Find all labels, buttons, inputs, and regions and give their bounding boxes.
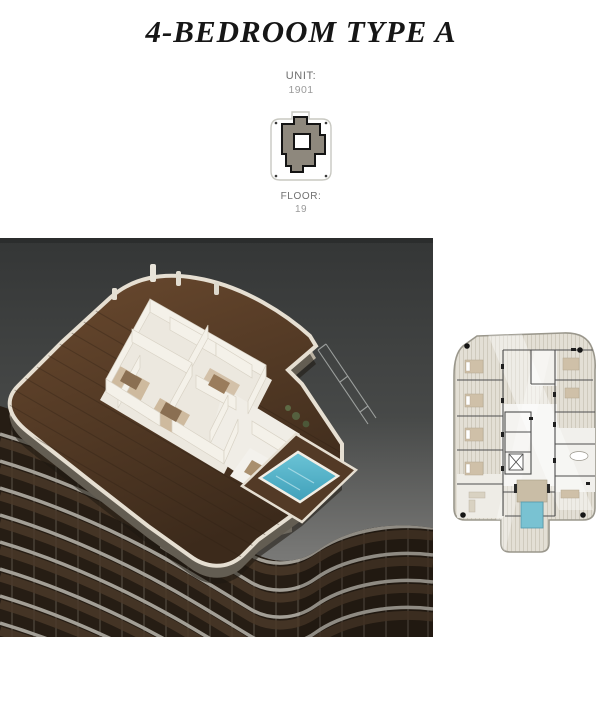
unit-info: UNIT: 1901 bbox=[0, 70, 602, 97]
plan-spa-deck bbox=[517, 480, 547, 502]
unit-label: UNIT: bbox=[0, 70, 602, 84]
plan-pool bbox=[521, 502, 543, 528]
plan-bathtub bbox=[570, 452, 588, 461]
floor-number: 19 bbox=[0, 204, 602, 217]
keyplan-diagram bbox=[259, 108, 343, 190]
keyplan-core-cutout bbox=[294, 134, 310, 149]
floor-info: FLOOR: 19 bbox=[0, 191, 602, 216]
keyplan-footprint-icon bbox=[259, 108, 343, 190]
floorplan-2d-image bbox=[443, 324, 601, 554]
page-title: 4-BEDROOM TYPE A bbox=[0, 14, 602, 50]
plan-elevator bbox=[509, 454, 523, 470]
render-3d-penthouse-cutaway bbox=[0, 238, 433, 637]
unit-number: 1901 bbox=[0, 84, 602, 97]
floorplan-2d bbox=[443, 324, 601, 554]
render-3d-image bbox=[0, 238, 433, 637]
render-top-edge bbox=[0, 238, 433, 243]
floor-label: FLOOR: bbox=[0, 191, 602, 204]
brochure-page: 4-BEDROOM TYPE A UNIT: 1901 FLOOR: 19 bbox=[0, 0, 602, 720]
